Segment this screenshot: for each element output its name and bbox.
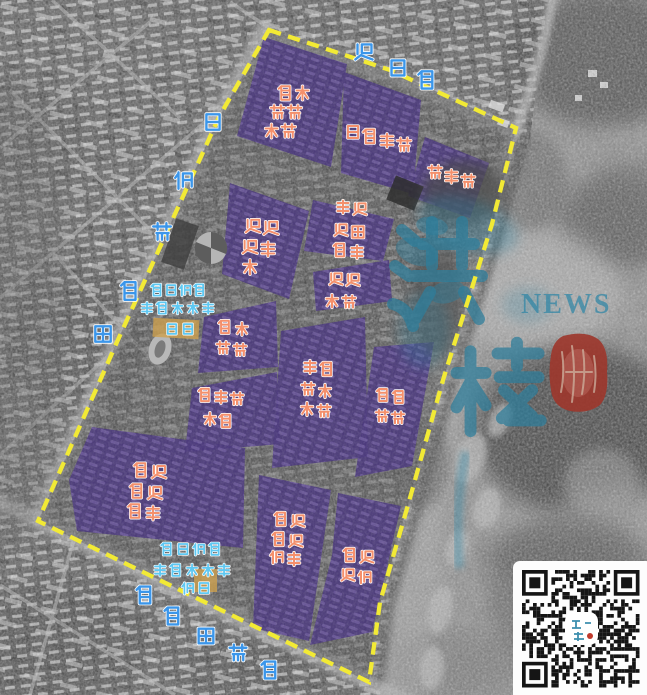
svg-text:NEWS: NEWS bbox=[521, 289, 611, 320]
